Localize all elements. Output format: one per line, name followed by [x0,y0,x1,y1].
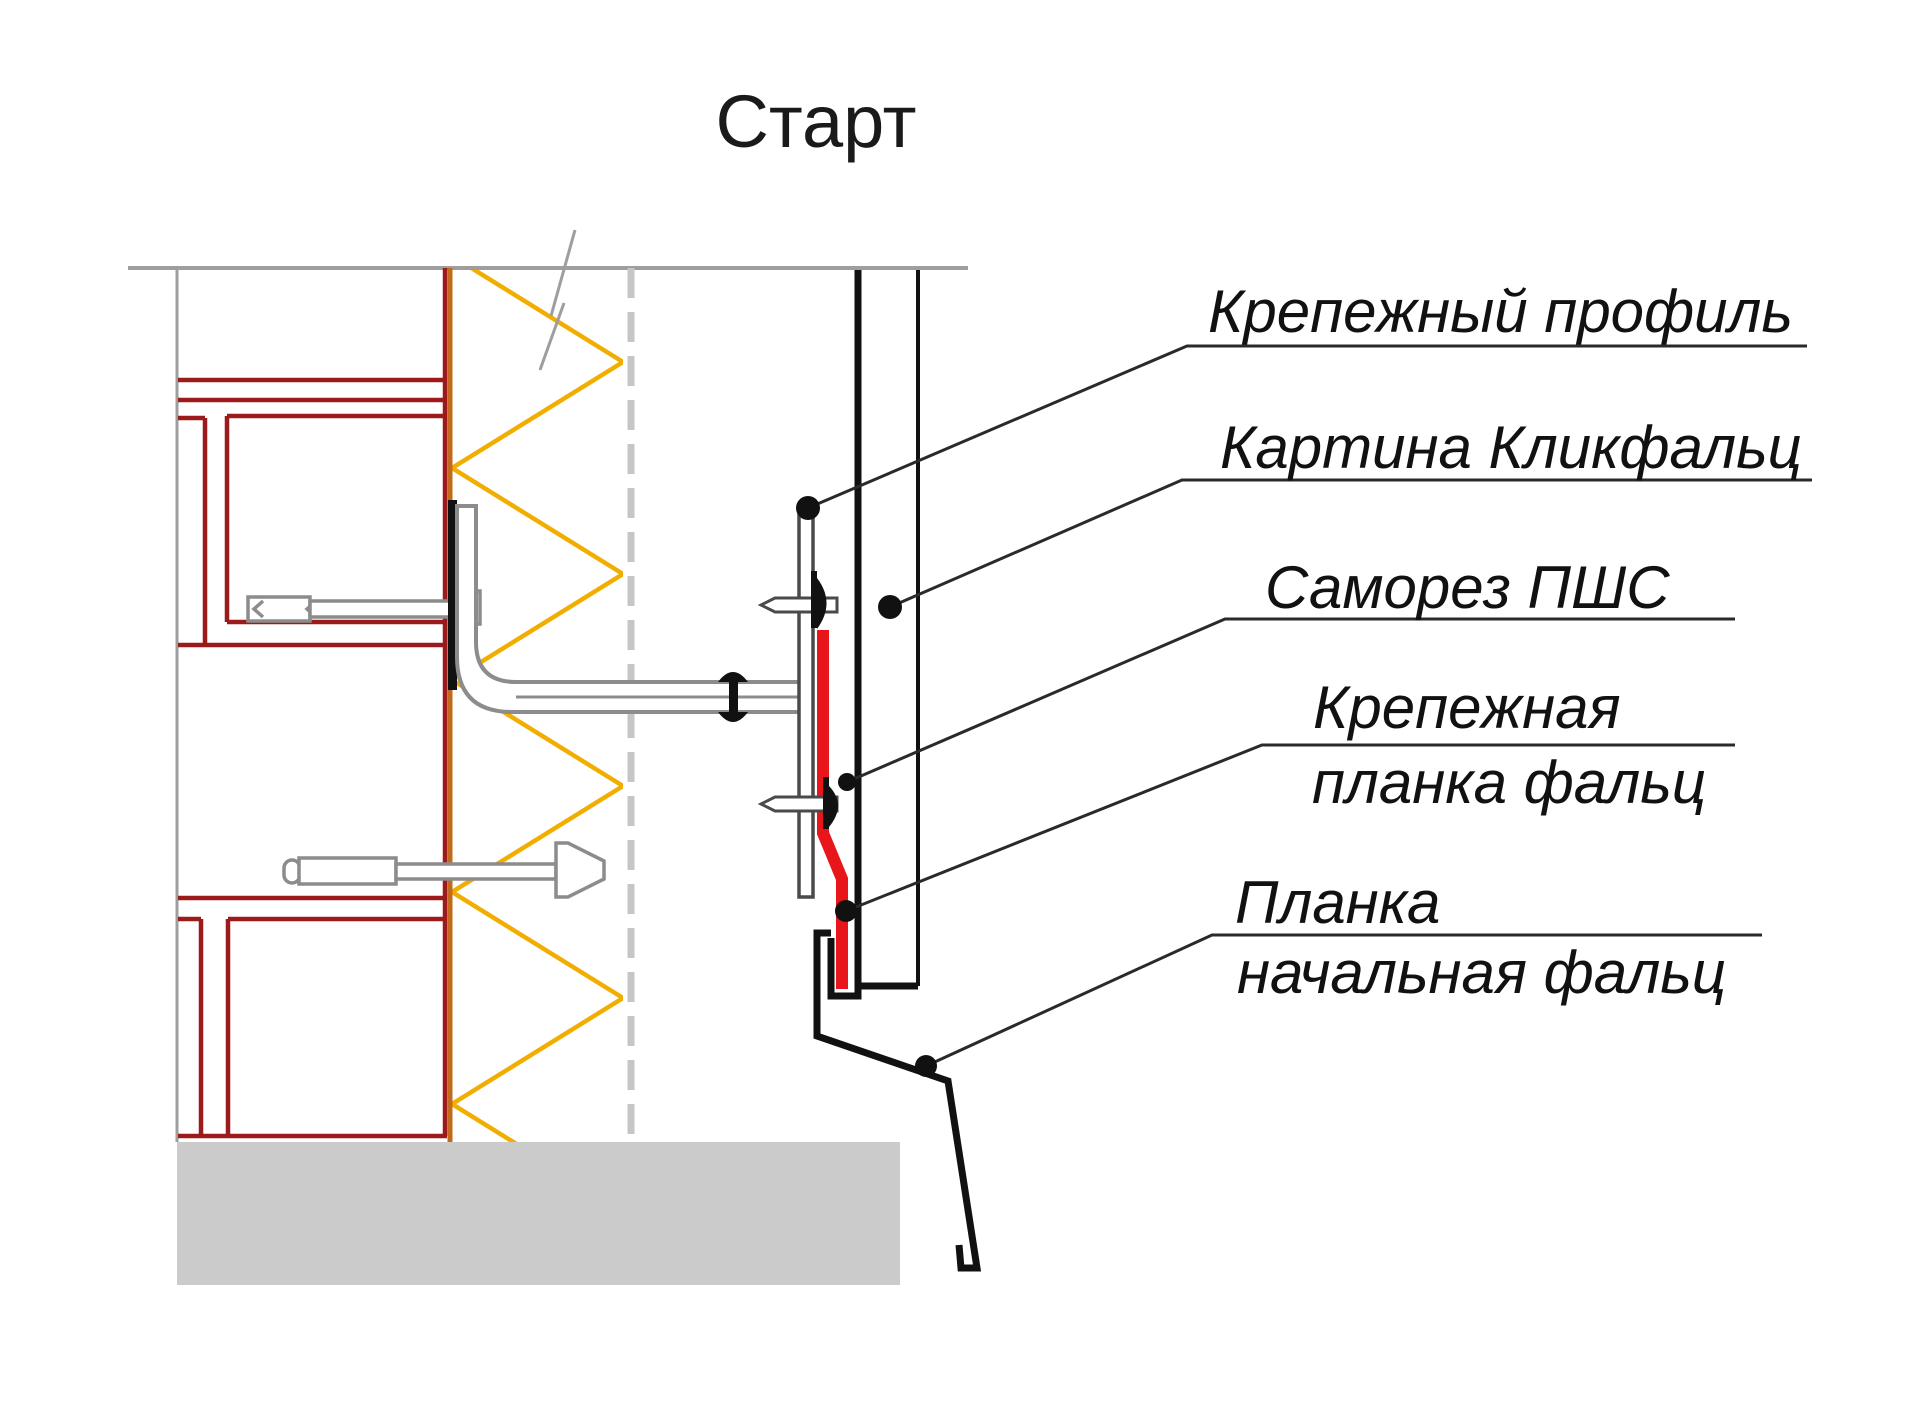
bracket-bolt-head-top [718,672,748,682]
callout-dot-panel [878,595,902,619]
clip-upper-leg [811,571,817,628]
label-fastening-strip-line2: планка фальц [1312,749,1706,816]
panel-left-face [858,270,918,986]
label-fastening-profile: Крепежный профиль [1208,278,1793,345]
label-panel: Картина Кликфальц [1220,414,1802,481]
bracket-bolt-head-bottom [718,712,748,722]
clip-upper-lobe [817,578,827,629]
clip-lower-leg [823,777,829,829]
anchor-bolt-body [248,597,310,621]
callout-dot-starting-strip [915,1055,937,1077]
detail-drawing: Старт [0,0,1920,1403]
callout-dot-fastening-profile [796,496,820,520]
callout-dot-screw [838,773,856,791]
label-fastening-strip-line1: Крепежная [1313,674,1621,741]
panel-clickfalz [858,270,918,986]
dowel-shaft [396,864,556,879]
drawing-page: Старт [0,0,1920,1403]
foundation-block [177,1142,900,1285]
clip-lower-lobe [829,786,838,827]
label-screw: Саморез ПШС [1265,554,1670,621]
dowel-body [299,858,396,884]
label-starting-strip-line1: Планка [1235,869,1440,936]
callout-dot-fastening-strip [835,900,857,922]
wall-frame-red [178,268,447,1136]
fastening-profile [799,507,813,897]
page-title: Старт [715,80,916,163]
label-starting-strip-line2: начальная фальц [1237,939,1726,1006]
anchor-bolt-shaft [310,601,460,617]
